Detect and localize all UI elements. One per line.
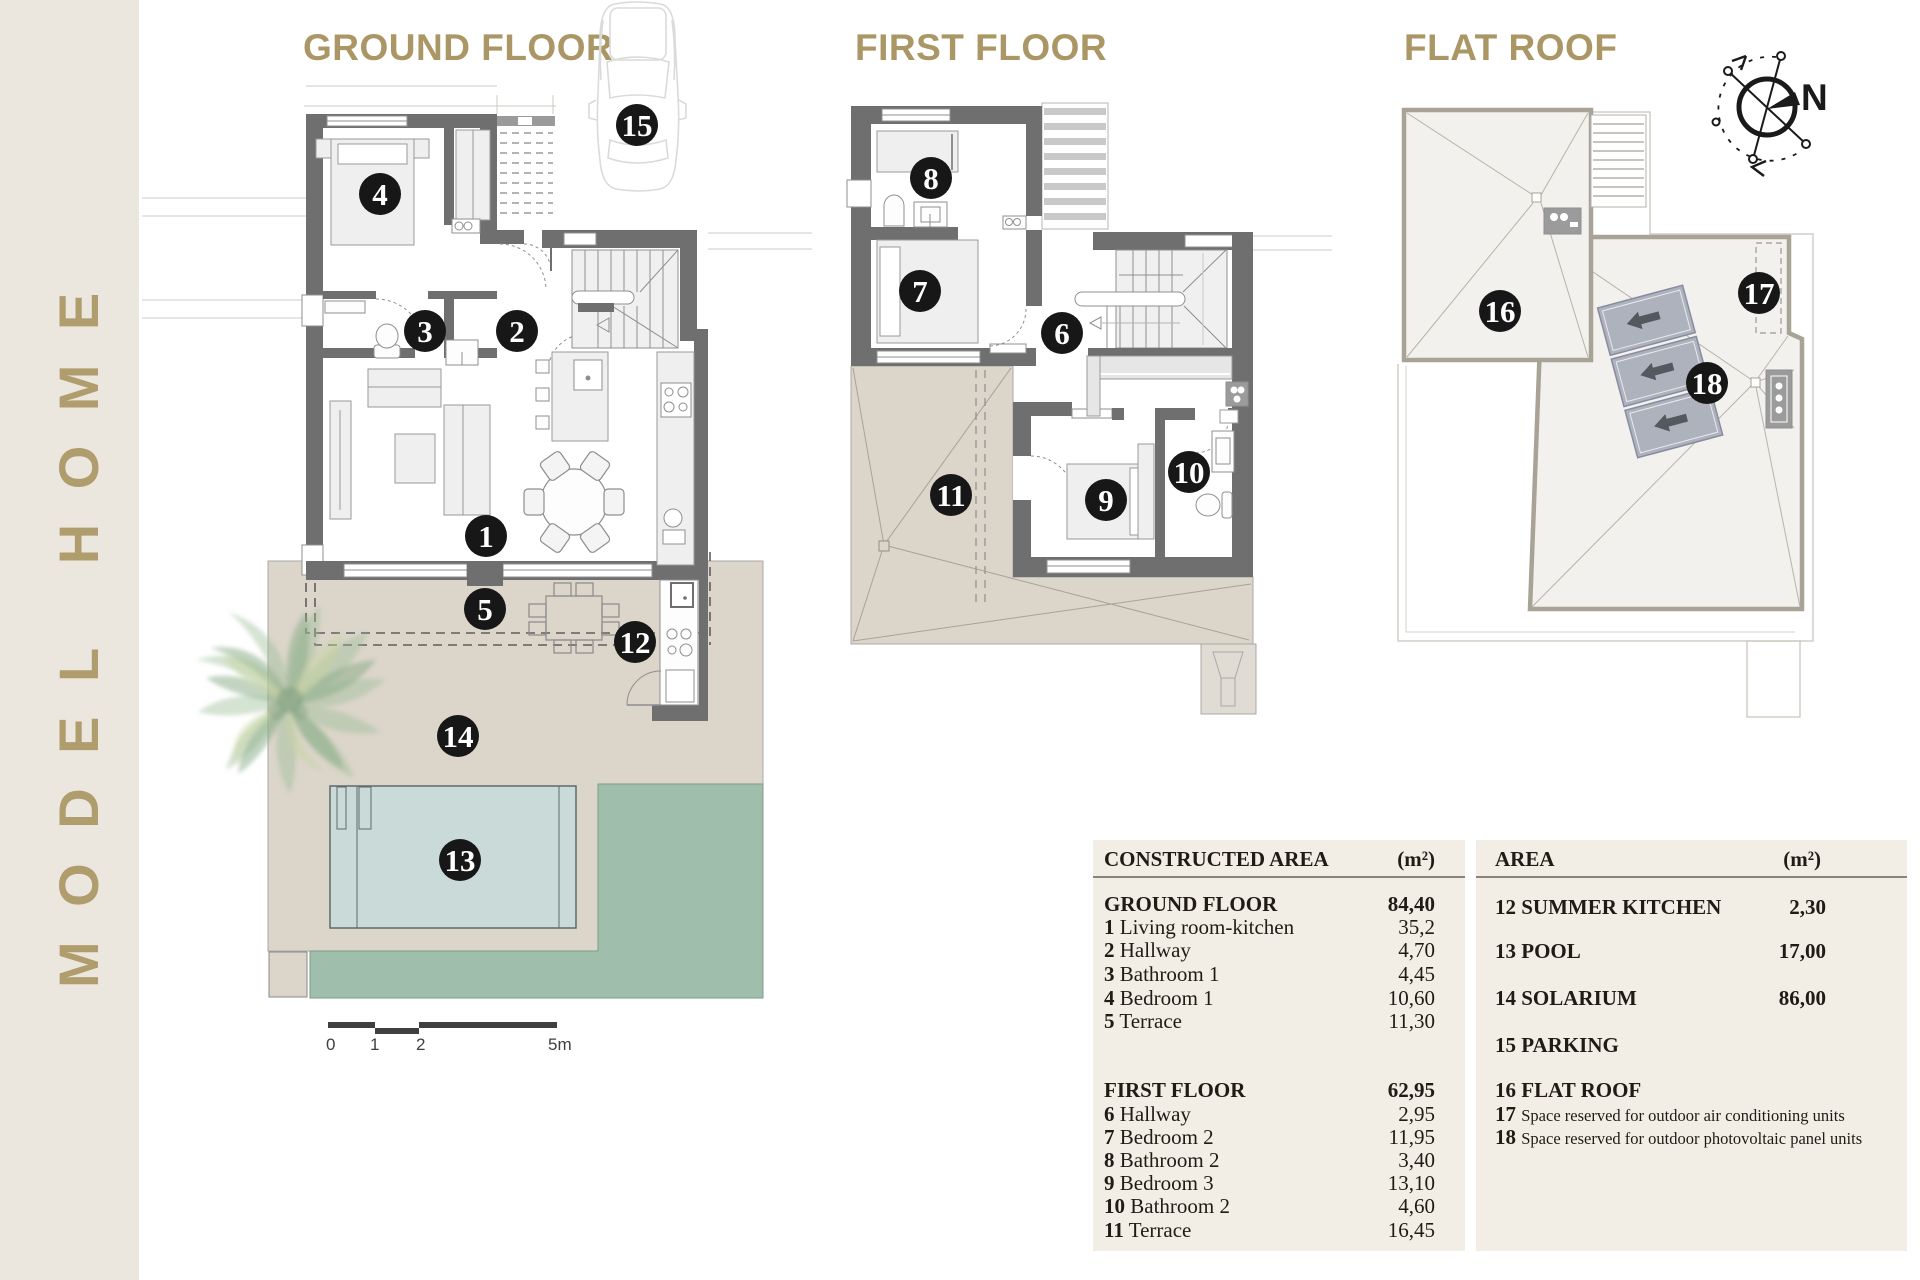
- svg-text:2: 2: [416, 1035, 425, 1054]
- svg-text:5m: 5m: [548, 1035, 572, 1054]
- svg-text:84,40: 84,40: [1388, 892, 1435, 916]
- svg-text:14: 14: [443, 719, 474, 754]
- svg-text:15: 15: [622, 108, 653, 143]
- svg-text:GROUND FLOOR: GROUND FLOOR: [303, 27, 613, 68]
- svg-text:13: 13: [445, 843, 476, 878]
- svg-text:11 Terrace: 11 Terrace: [1104, 1218, 1191, 1242]
- svg-text:GROUND FLOOR: GROUND FLOOR: [1104, 892, 1278, 916]
- svg-text:(m²): (m²): [1783, 847, 1821, 871]
- svg-text:86,00: 86,00: [1779, 986, 1826, 1010]
- svg-text:2,95: 2,95: [1398, 1102, 1435, 1126]
- svg-text:4,45: 4,45: [1398, 962, 1435, 986]
- svg-text:0: 0: [326, 1035, 335, 1054]
- svg-text:17 Space reserved for outdoor: 17 Space reserved for outdoor air condit…: [1495, 1102, 1845, 1126]
- svg-text:MODEL HOME: MODEL HOME: [47, 258, 110, 988]
- svg-text:4 Bedroom 1: 4 Bedroom 1: [1104, 986, 1214, 1010]
- svg-text:10: 10: [1174, 455, 1205, 490]
- svg-text:FIRST FLOOR: FIRST FLOOR: [1104, 1078, 1246, 1102]
- svg-text:2,30: 2,30: [1789, 895, 1826, 919]
- svg-text:CONSTRUCTED AREA: CONSTRUCTED AREA: [1104, 847, 1329, 871]
- svg-text:6: 6: [1054, 316, 1070, 351]
- svg-text:3,40: 3,40: [1398, 1148, 1435, 1172]
- svg-text:(m²): (m²): [1397, 847, 1435, 871]
- svg-text:11,95: 11,95: [1389, 1125, 1435, 1149]
- svg-text:12 SUMMER KITCHEN: 12 SUMMER KITCHEN: [1495, 895, 1721, 919]
- svg-text:11,30: 11,30: [1389, 1009, 1435, 1033]
- svg-text:3: 3: [417, 314, 433, 349]
- svg-text:16,45: 16,45: [1388, 1218, 1435, 1242]
- svg-text:10 Bathroom 2: 10 Bathroom 2: [1104, 1194, 1230, 1218]
- svg-text:6 Hallway: 6 Hallway: [1104, 1102, 1191, 1126]
- svg-text:13 POOL: 13 POOL: [1495, 939, 1581, 963]
- svg-text:18: 18: [1692, 366, 1723, 401]
- svg-text:17: 17: [1744, 276, 1775, 311]
- svg-text:2 Hallway: 2 Hallway: [1104, 938, 1191, 962]
- svg-text:8: 8: [923, 161, 939, 196]
- svg-text:3 Bathroom 1: 3 Bathroom 1: [1104, 962, 1220, 986]
- svg-text:10,60: 10,60: [1388, 986, 1435, 1010]
- svg-text:12: 12: [620, 625, 651, 660]
- svg-text:16: 16: [1485, 294, 1516, 329]
- svg-text:4: 4: [372, 177, 388, 212]
- svg-text:4,60: 4,60: [1398, 1194, 1435, 1218]
- svg-text:35,2: 35,2: [1398, 915, 1435, 939]
- svg-text:9 Bedroom 3: 9 Bedroom 3: [1104, 1171, 1214, 1195]
- svg-text:8 Bathroom 2: 8 Bathroom 2: [1104, 1148, 1220, 1172]
- svg-text:4,70: 4,70: [1398, 938, 1435, 962]
- svg-text:1 Living room-kitchen: 1 Living room-kitchen: [1104, 915, 1295, 939]
- svg-text:2: 2: [509, 314, 525, 349]
- svg-text:15 PARKING: 15 PARKING: [1495, 1033, 1619, 1057]
- svg-text:5: 5: [477, 592, 493, 627]
- svg-text:1: 1: [478, 519, 494, 554]
- svg-text:N: N: [1801, 77, 1828, 118]
- svg-text:FLAT ROOF: FLAT ROOF: [1404, 27, 1617, 68]
- svg-text:17,00: 17,00: [1779, 939, 1826, 963]
- svg-text:9: 9: [1098, 483, 1114, 518]
- svg-text:11: 11: [936, 478, 965, 513]
- svg-text:1: 1: [370, 1035, 379, 1054]
- svg-text:5 Terrace: 5 Terrace: [1104, 1009, 1182, 1033]
- svg-text:62,95: 62,95: [1388, 1078, 1435, 1102]
- svg-text:7 Bedroom 2: 7 Bedroom 2: [1104, 1125, 1214, 1149]
- svg-text:13,10: 13,10: [1388, 1171, 1435, 1195]
- svg-text:FIRST FLOOR: FIRST FLOOR: [855, 27, 1107, 68]
- svg-text:14 SOLARIUM: 14 SOLARIUM: [1495, 986, 1637, 1010]
- svg-text:16 FLAT ROOF: 16 FLAT ROOF: [1495, 1078, 1641, 1102]
- svg-text:AREA: AREA: [1495, 847, 1555, 871]
- svg-text:7: 7: [912, 274, 928, 309]
- svg-text:18 Space reserved for outdoor: 18 Space reserved for outdoor photovolta…: [1495, 1125, 1862, 1149]
